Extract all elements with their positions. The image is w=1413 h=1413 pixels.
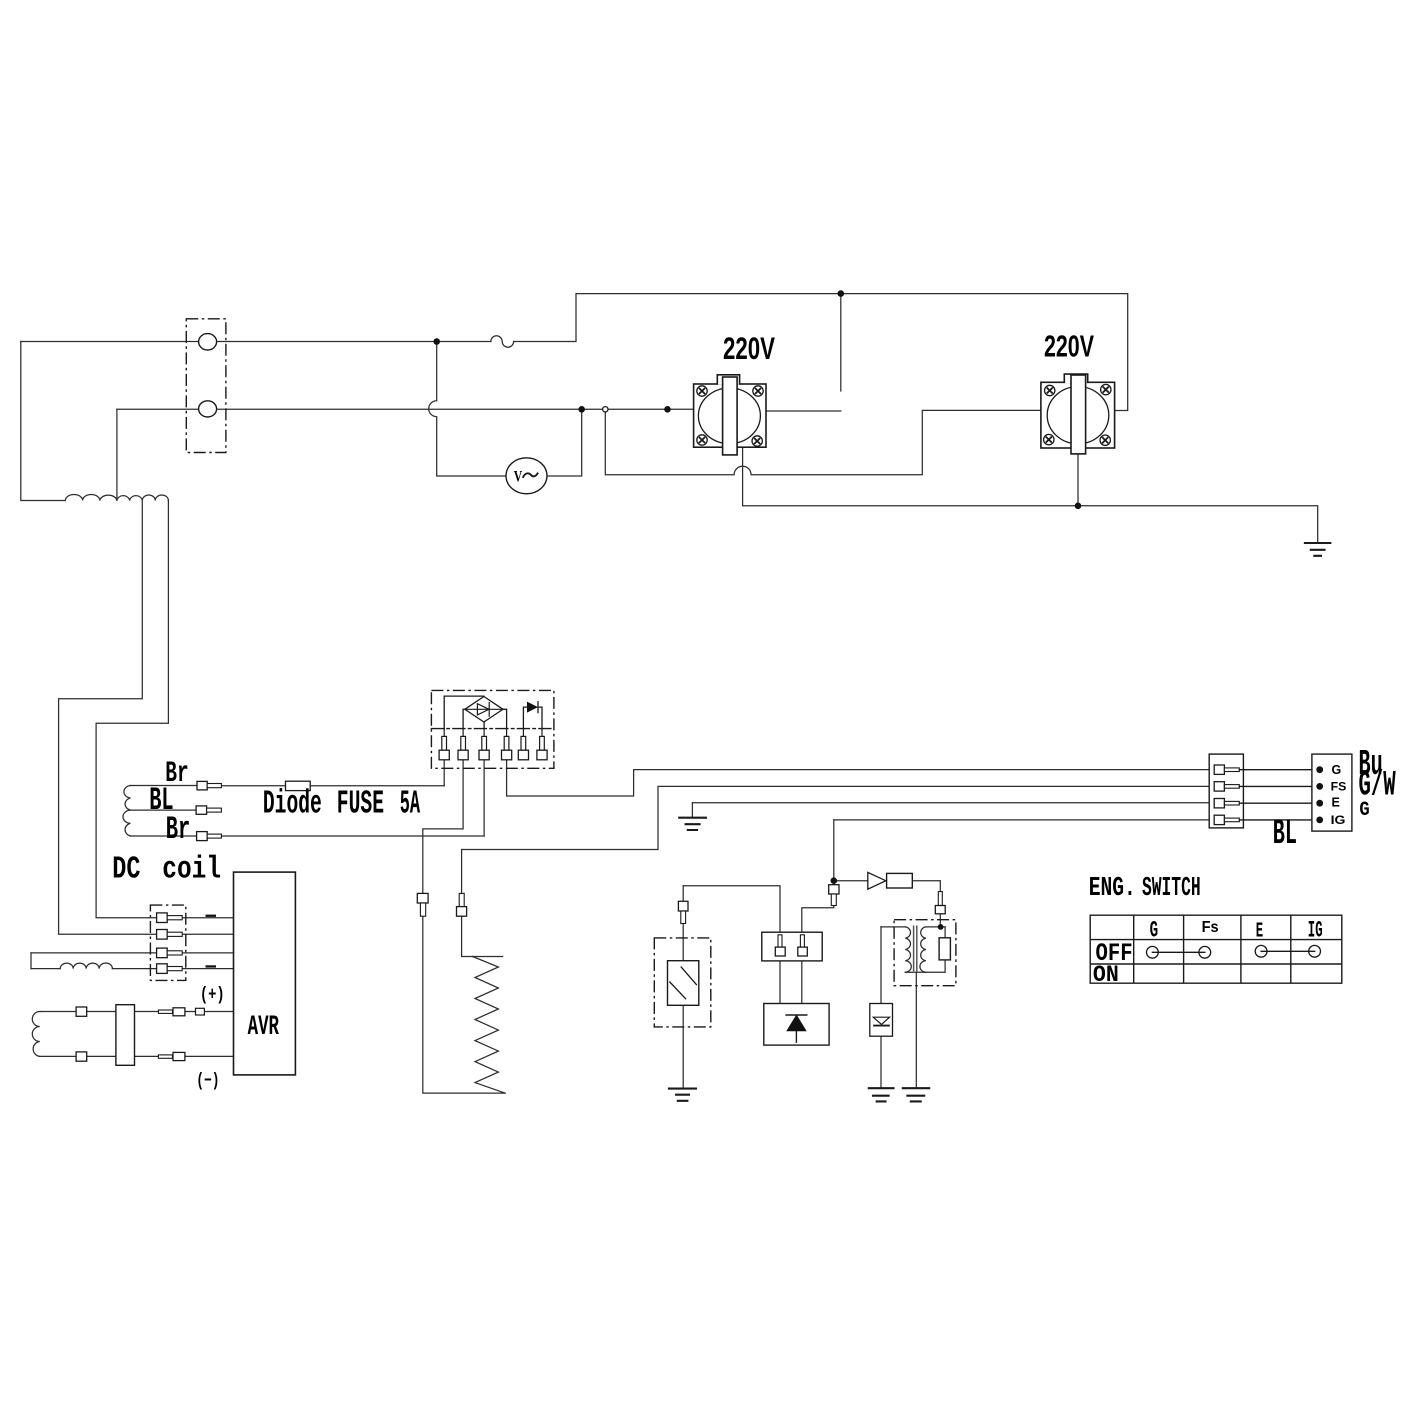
svg-text:220V: 220V (723, 331, 775, 366)
svg-text:220V: 220V (1044, 328, 1095, 363)
svg-text:coil: coil (162, 851, 221, 887)
svg-text:ENG.: ENG. (1089, 874, 1136, 904)
svg-text:(+): (+) (200, 984, 225, 1005)
svg-text:E: E (1256, 919, 1263, 944)
svg-text:SWITCH: SWITCH (1142, 874, 1201, 904)
svg-text:5A: 5A (400, 786, 421, 823)
svg-text:FS: FS (1331, 780, 1347, 794)
svg-text:ON: ON (1093, 961, 1119, 988)
svg-text:Diode: Diode (263, 786, 322, 823)
svg-text:IG: IG (1331, 813, 1346, 827)
svg-text:G: G (1359, 798, 1369, 822)
svg-text:AVR: AVR (248, 1011, 280, 1042)
svg-text:IG: IG (1308, 918, 1323, 944)
svg-text:G: G (1332, 763, 1342, 777)
svg-text:Fs: Fs (1202, 919, 1219, 936)
svg-text:E: E (1332, 796, 1340, 810)
svg-text:V: V (514, 468, 523, 485)
svg-text:(−): (−) (196, 1070, 219, 1091)
svg-text:BL: BL (1273, 813, 1297, 853)
svg-text:FUSE: FUSE (337, 786, 384, 823)
svg-text:Br: Br (166, 812, 191, 849)
svg-text:G: G (1150, 917, 1159, 944)
svg-text:DC: DC (112, 851, 140, 887)
